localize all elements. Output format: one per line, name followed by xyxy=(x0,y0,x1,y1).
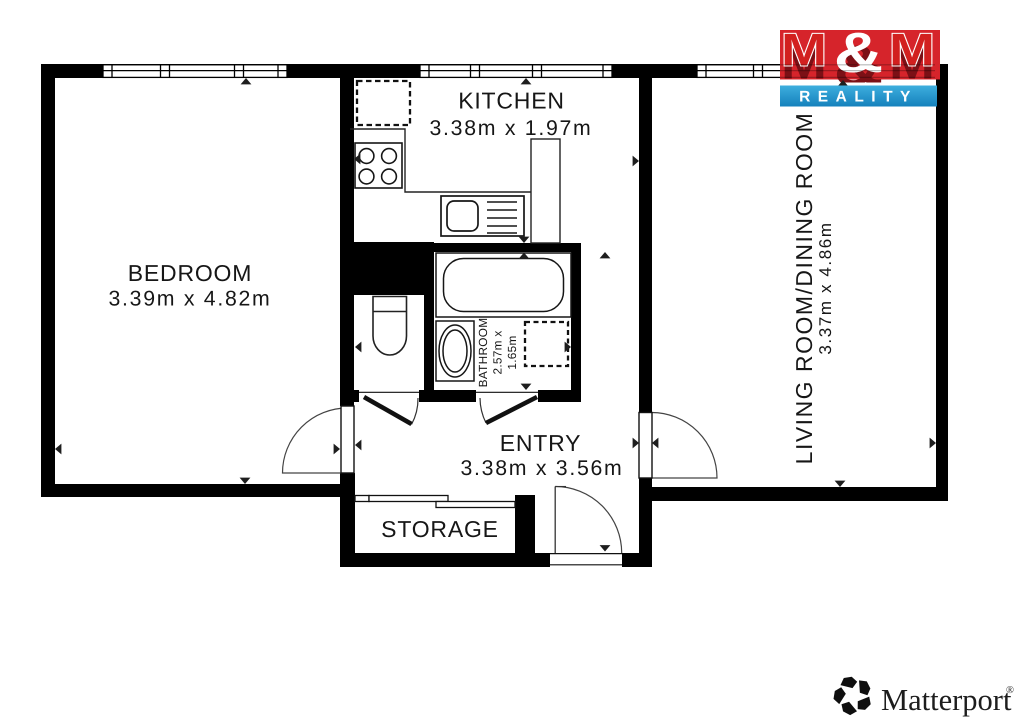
svg-text:3.37m x 4.86m: 3.37m x 4.86m xyxy=(816,221,835,354)
svg-text:BATHROOM: BATHROOM xyxy=(476,318,490,388)
svg-text:KITCHEN: KITCHEN xyxy=(458,88,565,114)
svg-text:REALITY: REALITY xyxy=(799,89,918,106)
svg-text:ENTRY: ENTRY xyxy=(500,430,582,456)
svg-text:&: & xyxy=(834,21,883,85)
svg-text:2.57m x: 2.57m x xyxy=(491,330,505,374)
svg-text:3.38m x 3.56m: 3.38m x 3.56m xyxy=(461,456,624,480)
svg-text:BEDROOM: BEDROOM xyxy=(128,260,252,286)
svg-text:3.38m x 1.97m: 3.38m x 1.97m xyxy=(430,116,593,140)
svg-text:LIVING ROOM/DINING ROOM: LIVING ROOM/DINING ROOM xyxy=(791,112,817,465)
svg-text:1.65m: 1.65m xyxy=(505,335,519,369)
svg-text:Matterport: Matterport xyxy=(881,683,1012,717)
svg-text:®: ® xyxy=(1006,685,1014,696)
svg-text:3.39m x 4.82m: 3.39m x 4.82m xyxy=(109,287,272,311)
svg-text:STORAGE: STORAGE xyxy=(381,516,499,542)
svg-text:M: M xyxy=(889,24,935,76)
svg-text:M: M xyxy=(781,24,827,76)
